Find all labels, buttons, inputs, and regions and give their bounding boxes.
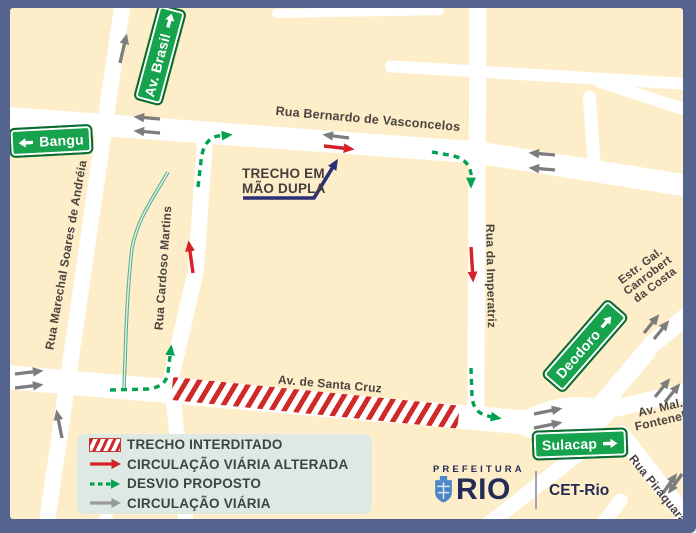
green-dashed-arrow-icon [89, 478, 127, 490]
legend-row-closed-section: TRECHO INTERDITADO [77, 436, 372, 454]
legend-label: TRECHO INTERDITADO [127, 437, 283, 452]
sign-bangu-label: Bangu [39, 131, 84, 149]
rio-crest-icon [433, 476, 454, 503]
right-arrow-icon [597, 312, 615, 331]
logo-divider [535, 471, 537, 509]
two-way-annotation-line1: TRECHO EM [242, 167, 326, 182]
two-way-annotation: TRECHO EM MÃO DUPLA [242, 167, 326, 197]
legend-row-altered-circulation: CIRCULAÇÃO VIÁRIA ALTERADA [77, 456, 372, 474]
left-arrow-icon [18, 136, 34, 148]
two-way-annotation-line2: MÃO DUPLA [242, 182, 326, 197]
sign-sulacap: Sulacap [532, 427, 629, 460]
legend-row-circulation: CIRCULAÇÃO VIÁRIA [77, 495, 372, 513]
legend-label: CIRCULAÇÃO VIÁRIA ALTERADA [127, 457, 348, 472]
legend-panel: TRECHO INTERDITADO CIRCULAÇÃO VIÁRIA ALT… [77, 434, 372, 514]
street-label-imperatriz: Rua da Imperatriz [483, 224, 499, 328]
legend-label: DESVIO PROPOSTO [127, 476, 261, 491]
gray-arrow-icon [89, 497, 127, 509]
legend-label: CIRCULAÇÃO VIÁRIA [127, 496, 271, 511]
circulation-gray-arrows [15, 37, 682, 493]
legend-row-proposed-detour: DESVIO PROPOSTO [77, 475, 372, 493]
red-arrow-icon [89, 458, 127, 470]
sign-sulacap-label: Sulacap [542, 435, 598, 453]
rio-wordmark: RIO [456, 476, 511, 503]
sign-bangu: Bangu [8, 124, 93, 158]
hatched-swatch-icon [89, 438, 127, 452]
up-arrow-icon [162, 12, 177, 29]
traffic-map: Rua Bernardo de Vasconcelos Rua Marechal… [0, 0, 696, 533]
right-arrow-icon [603, 437, 618, 449]
cet-rio-label: CET-Rio [549, 482, 609, 500]
prefeitura-rio-logo: PREFEITURA RIO [433, 464, 525, 503]
altered-circulation-red-arrows [189, 146, 473, 279]
